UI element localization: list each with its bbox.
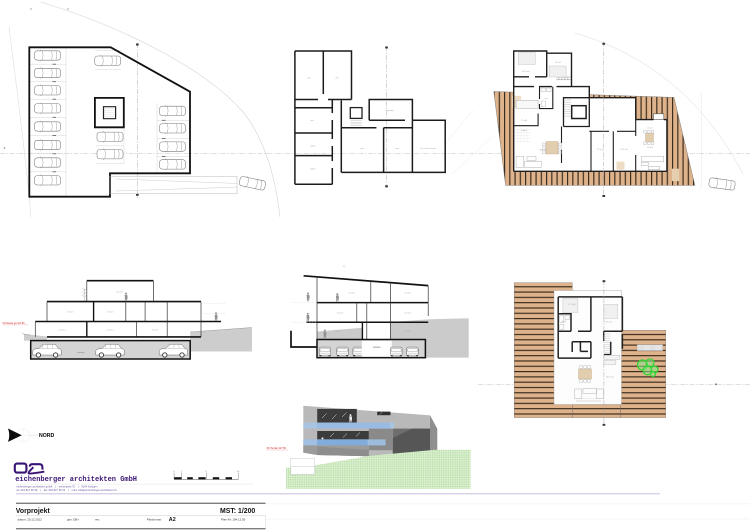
svg-text:essen: essen [647, 128, 653, 130]
svg-text:NORD: NORD [39, 433, 55, 439]
svg-text:rev:: rev: [95, 518, 100, 522]
svg-text:keller: keller [311, 168, 316, 171]
svg-text:küche: küche [521, 130, 527, 132]
svg-text:zimmer: zimmer [152, 329, 159, 332]
svg-text:7.5 m2: 7.5 m2 [521, 120, 528, 122]
svg-text:zimmer: zimmer [59, 329, 66, 332]
svg-text:MST: 1/200: MST: 1/200 [220, 508, 255, 515]
svg-text:Vorprojekt: Vorprojekt [16, 508, 51, 515]
svg-text:zimmer: zimmer [107, 311, 114, 314]
svg-text:zimmer: zimmer [337, 312, 344, 315]
svg-text:11 m2: 11 m2 [555, 62, 561, 64]
svg-text:12.5 m2: 12.5 m2 [604, 322, 612, 324]
svg-text:datum: 20.12.2012: datum: 20.12.2012 [18, 518, 42, 522]
svg-text:17.5 m2: 17.5 m2 [568, 304, 576, 306]
svg-text:UK Decke ga 417.80: UK Decke ga 417.80 [3, 322, 26, 325]
svg-text:speicher: speicher [386, 109, 394, 112]
svg-text:keller: keller [406, 330, 411, 333]
svg-text:zimmer: zimmer [67, 311, 74, 314]
svg-text:zimmer: zimmer [107, 329, 114, 332]
svg-text:Planformat:: Planformat: [147, 518, 162, 522]
svg-text:zimmer: zimmer [405, 312, 412, 315]
svg-text:Plan-Nr: 194.12.05: Plan-Nr: 194.12.05 [221, 518, 246, 522]
svg-text:30.5 m2: 30.5 m2 [606, 377, 614, 379]
svg-text:lü- / techn.-raum: lü- / techn.-raum [420, 147, 435, 150]
svg-text:gez: DB+: gez: DB+ [67, 518, 79, 522]
svg-text:tel: 062 827 38 38 | fax: tel: 062 827 38 38 | fax: 062 827 38 33 … [17, 488, 118, 492]
svg-text:zim: zim [360, 148, 364, 150]
svg-text:zim: zim [307, 77, 311, 79]
svg-text:eichenberger architekten gmbh: eichenberger architekten gmbh | reinstra… [17, 485, 98, 489]
svg-text:eichenberger architekten GmbH: eichenberger architekten GmbH [15, 476, 137, 484]
svg-text:zimmer: zimmer [349, 292, 356, 295]
svg-text:13 m2: 13 m2 [597, 149, 604, 151]
svg-text:A2: A2 [169, 517, 176, 523]
svg-text:OK Terrain 417.50: OK Terrain 417.50 [267, 447, 287, 450]
svg-text:zimmer: zimmer [117, 291, 124, 294]
svg-text:balkon: balkon [335, 331, 342, 333]
svg-text:46.6 m2: 46.6 m2 [539, 150, 547, 152]
svg-text:keller: keller [311, 145, 316, 148]
svg-text:16.5 m2: 16.5 m2 [522, 71, 530, 73]
svg-text:zim: zim [335, 77, 339, 79]
svg-text:zim: zim [395, 148, 399, 150]
svg-text:18 m2: 18 m2 [647, 147, 654, 149]
svg-text:zimmer: zimmer [405, 292, 412, 295]
svg-text:11.5 m2: 11.5 m2 [620, 149, 628, 151]
svg-text:t/wc: t/wc [545, 97, 549, 100]
